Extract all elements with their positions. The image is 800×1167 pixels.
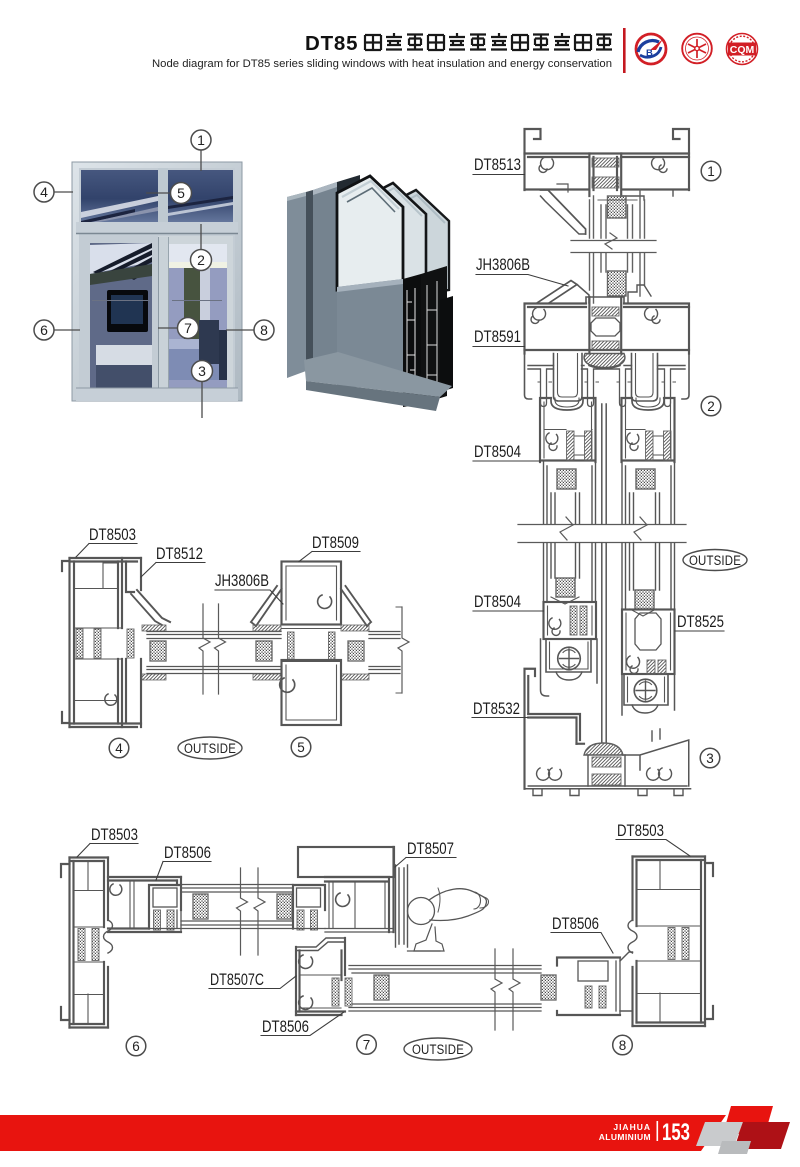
svg-text:DT8506: DT8506 (552, 915, 599, 933)
svg-text:2: 2 (197, 252, 205, 268)
svg-text:DT8525: DT8525 (677, 613, 724, 631)
svg-text:JIAHUA: JIAHUA (613, 1122, 651, 1132)
svg-text:ALUMINIUM: ALUMINIUM (599, 1132, 651, 1142)
svg-text:3: 3 (198, 363, 206, 379)
svg-text:JH3806B: JH3806B (476, 256, 530, 274)
svg-text:153: 153 (662, 1119, 690, 1146)
svg-text:DT8509: DT8509 (312, 534, 359, 552)
svg-text:5: 5 (297, 740, 305, 755)
svg-text:DT8503: DT8503 (91, 826, 138, 844)
svg-text:OUTSIDE: OUTSIDE (412, 1042, 464, 1057)
svg-text:5: 5 (177, 185, 185, 201)
svg-text:B: B (646, 48, 653, 59)
svg-text:CQM: CQM (730, 44, 755, 56)
svg-text:DT8513: DT8513 (474, 156, 521, 174)
svg-text:DT8532: DT8532 (473, 700, 520, 718)
svg-text:JH3806B: JH3806B (215, 572, 269, 590)
svg-text:OUTSIDE: OUTSIDE (689, 553, 741, 568)
svg-text:DT8504: DT8504 (474, 443, 521, 461)
svg-text:DT8504: DT8504 (474, 593, 521, 611)
svg-text:DT8506: DT8506 (262, 1018, 309, 1036)
svg-text:DT8503: DT8503 (89, 526, 136, 544)
svg-text:8: 8 (619, 1038, 627, 1053)
svg-text:3: 3 (706, 751, 714, 766)
svg-text:DT8591: DT8591 (474, 328, 521, 346)
svg-text:DT8506: DT8506 (164, 844, 211, 862)
svg-text:DT8507: DT8507 (407, 840, 454, 858)
svg-text:4: 4 (40, 184, 48, 200)
svg-text:DT85: DT85 (305, 32, 358, 55)
svg-text:4: 4 (115, 741, 123, 756)
svg-text:1: 1 (707, 164, 715, 179)
svg-text:DT8507C: DT8507C (210, 971, 264, 989)
svg-text:OUTSIDE: OUTSIDE (184, 741, 236, 756)
svg-text:8: 8 (260, 322, 268, 338)
svg-text:1: 1 (197, 132, 205, 148)
svg-text:2: 2 (707, 399, 715, 414)
svg-text:DT8512: DT8512 (156, 545, 203, 563)
svg-text:Node diagram for DT85 series s: Node diagram for DT85 series sliding win… (152, 58, 612, 70)
svg-text:6: 6 (40, 322, 48, 338)
svg-text:7: 7 (184, 320, 192, 336)
svg-text:7: 7 (363, 1038, 371, 1053)
svg-text:DT8503: DT8503 (617, 822, 664, 840)
svg-text:6: 6 (132, 1039, 140, 1054)
